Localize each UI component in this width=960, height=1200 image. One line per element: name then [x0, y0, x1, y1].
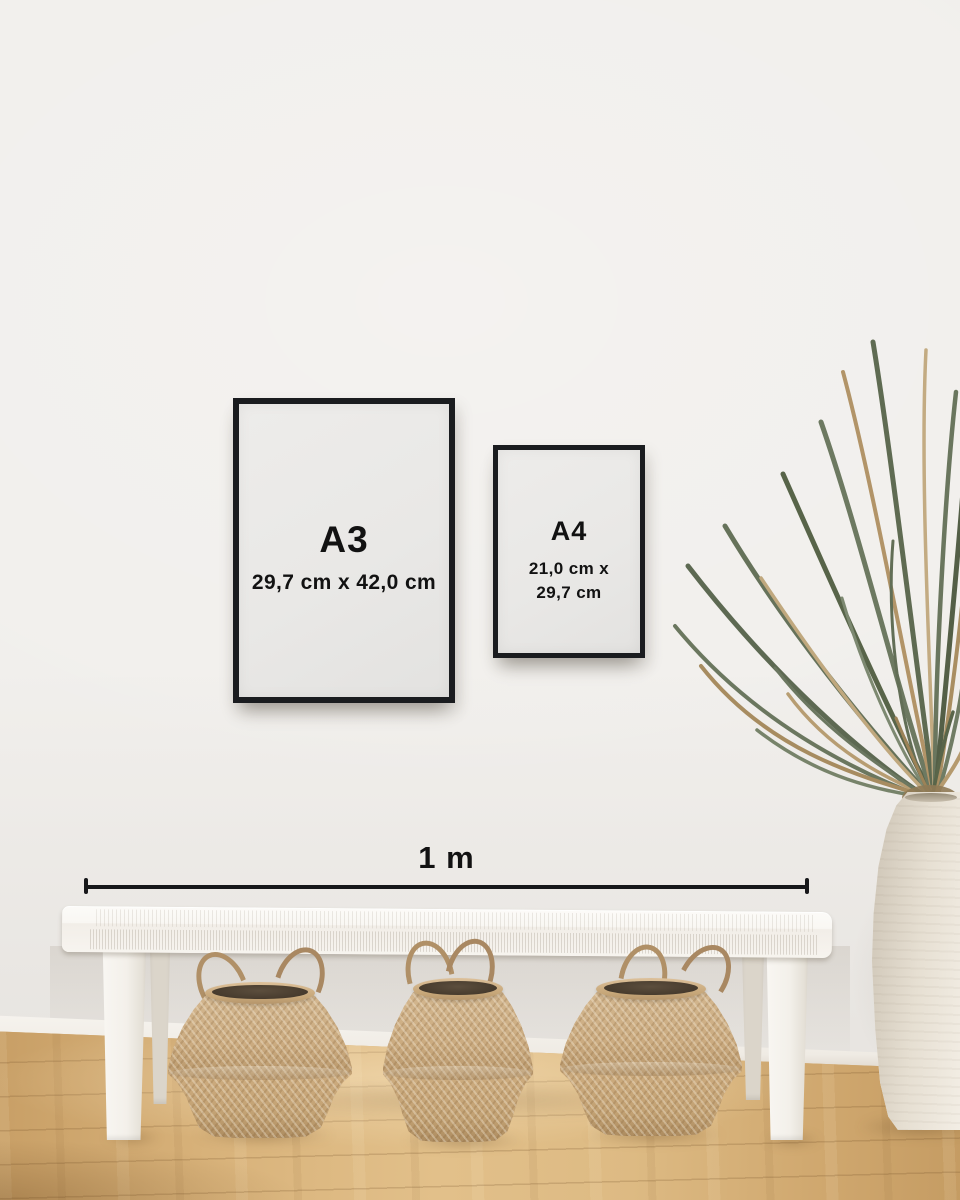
basket-ridge — [385, 1066, 532, 1080]
seagrass-basket-left — [168, 944, 352, 1138]
bench-leg-right-front — [764, 950, 808, 1140]
basket-interior — [604, 981, 699, 995]
scale-bar: 1 m — [85, 840, 808, 890]
bench-leg-left-front — [100, 948, 146, 1140]
basket-ridge — [170, 1066, 350, 1080]
scale-tick-left — [84, 878, 88, 894]
scale-tick-right — [805, 878, 809, 894]
basket-body — [383, 988, 533, 1142]
frame-dimensions-line1: 21,0 cm x — [529, 559, 609, 578]
palm-plant — [633, 326, 960, 816]
frame-dimensions: 29,7 cm x 42,0 cm — [252, 571, 436, 595]
poster-frame-a3: A3 29,7 cm x 42,0 cm — [233, 398, 455, 703]
scale-line — [85, 885, 808, 889]
seagrass-basket-middle — [383, 938, 533, 1142]
frame-size-label: A3 — [319, 521, 368, 558]
scale-label: 1 m — [85, 840, 808, 876]
poster-size-mockup-scene: A3 29,7 cm x 42,0 cm A4 21,0 cm x 29,7 c… — [0, 0, 960, 1200]
frame-dimensions: 21,0 cm x 29,7 cm — [529, 557, 609, 605]
frame-dimensions-line2: 29,7 cm — [536, 583, 601, 602]
basket-ridge — [562, 1062, 740, 1076]
poster-frame-a4: A4 21,0 cm x 29,7 cm — [493, 445, 645, 658]
vase-mouth — [905, 793, 957, 802]
basket-interior — [212, 985, 308, 999]
frame-size-label: A4 — [551, 518, 588, 545]
basket-body — [168, 992, 352, 1138]
seagrass-basket-right — [560, 940, 742, 1136]
basket-interior — [419, 981, 497, 995]
floor-vase — [872, 792, 960, 1130]
palm-fronds — [675, 342, 960, 811]
